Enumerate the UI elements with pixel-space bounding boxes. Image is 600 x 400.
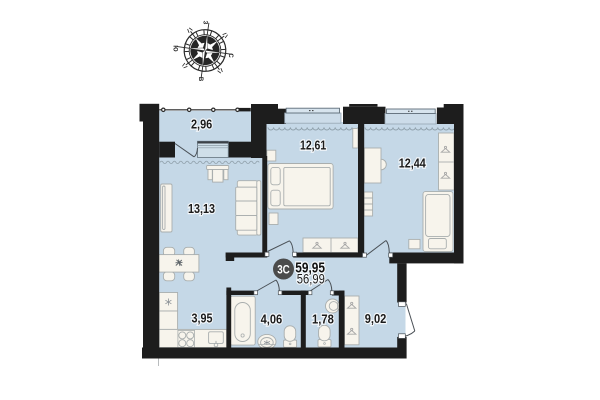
svg-text:13,13: 13,13 xyxy=(188,201,215,216)
svg-text:2,96: 2,96 xyxy=(191,116,212,131)
svg-text:3С: 3С xyxy=(277,263,290,277)
svg-text:Ю: Ю xyxy=(172,45,178,51)
svg-text:1,78: 1,78 xyxy=(312,312,334,327)
svg-text:В: В xyxy=(197,77,203,82)
svg-text:4,06: 4,06 xyxy=(261,311,283,326)
svg-text:12,61: 12,61 xyxy=(300,137,326,152)
svg-text:С: С xyxy=(227,53,233,58)
svg-text:3,95: 3,95 xyxy=(192,311,213,326)
svg-text:9,02: 9,02 xyxy=(365,311,387,326)
svg-text:З: З xyxy=(202,21,208,25)
svg-text:12,44: 12,44 xyxy=(399,156,427,171)
svg-text:56,99: 56,99 xyxy=(297,271,325,286)
